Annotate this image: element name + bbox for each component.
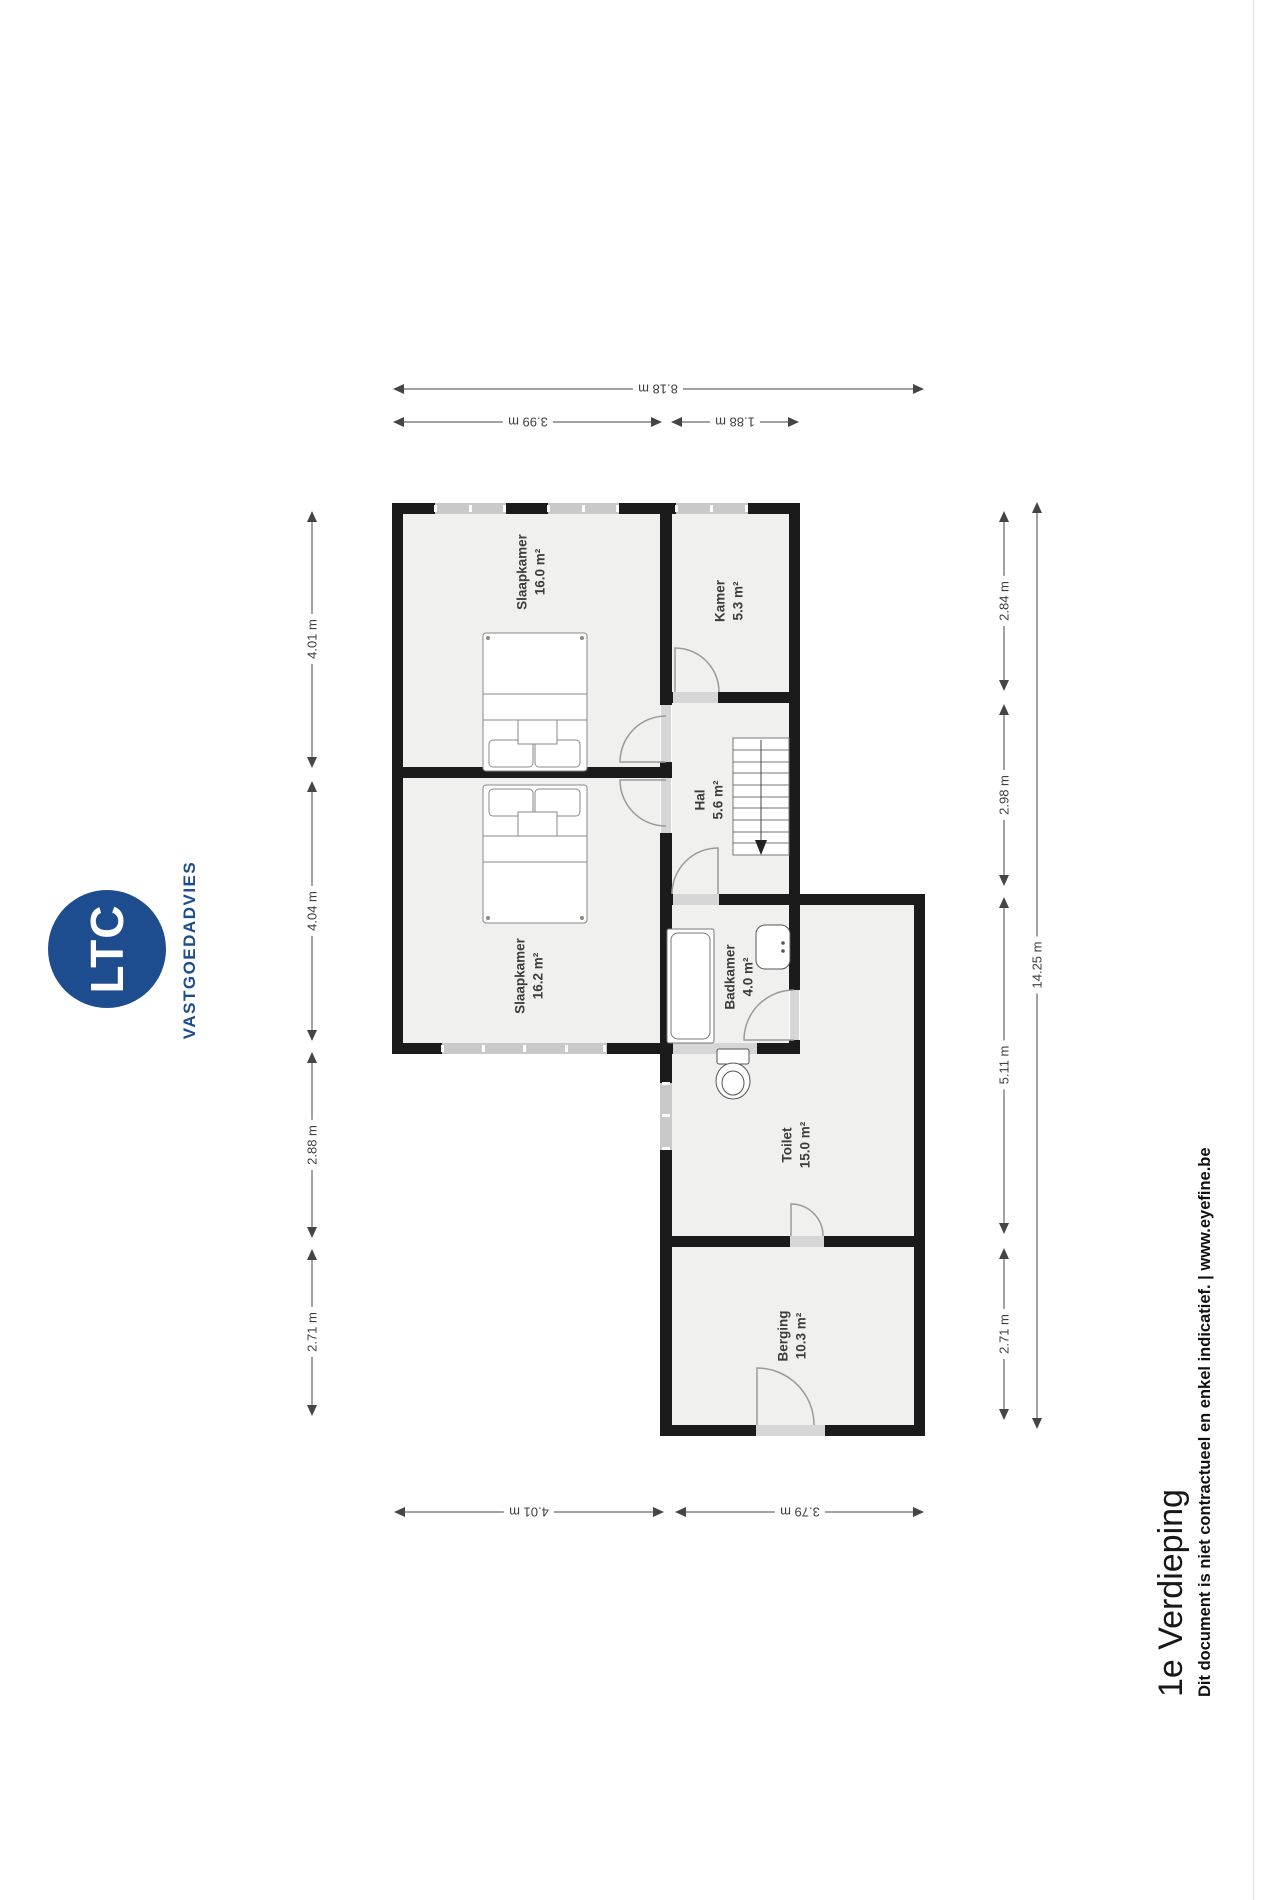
room-area: 5.6 m² xyxy=(709,780,727,819)
room-name: Toilet xyxy=(778,1122,796,1169)
washbasin xyxy=(756,925,790,969)
dim-right-1: 2.84 m xyxy=(997,576,1012,626)
dim-top-total: 8.18 m xyxy=(633,382,683,397)
page-edge-line xyxy=(1253,0,1254,1900)
room-label-slaapkamer-1: Slaapkamer 16.0 m² xyxy=(513,534,548,610)
dim-right-total: 14.25 m xyxy=(1030,937,1045,994)
room-name: Hal xyxy=(691,780,709,819)
room-area: 15.0 m² xyxy=(796,1122,814,1169)
disclaimer-text: Dit document is niet contractueel en enk… xyxy=(1196,1147,1215,1697)
room-label-toilet: Toilet 15.0 m² xyxy=(778,1122,813,1169)
room-area: 4.0 m² xyxy=(739,944,757,1009)
dim-right-2: 2.98 m xyxy=(997,770,1012,820)
toilet-fixture xyxy=(716,1049,750,1099)
room-name: Slaapkamer xyxy=(513,534,531,610)
room-label-badkamer: Badkamer 4.0 m² xyxy=(721,944,756,1009)
dim-left-3: 2.88 m xyxy=(305,1120,320,1170)
dim-top-left: 3.99 m xyxy=(503,415,553,430)
bathtub xyxy=(667,929,714,1043)
bed-slaapkamer-2 xyxy=(483,785,587,923)
dim-bottom-left: 4.01 m xyxy=(504,1505,554,1520)
room-area: 10.3 m² xyxy=(792,1310,810,1361)
bed-slaapkamer-1 xyxy=(483,633,587,771)
ltc-logo: LTC xyxy=(48,890,166,1008)
ltc-logo-subtitle: VASTGOEDADVIES xyxy=(180,861,200,1039)
room-name: Slaapkamer xyxy=(511,938,529,1014)
room-area: 16.0 m² xyxy=(531,534,549,610)
room-area: 5.3 m² xyxy=(729,580,747,622)
staircase xyxy=(733,738,789,855)
room-label-berging: Berging 10.3 m² xyxy=(774,1310,809,1361)
dim-right-4: 2.71 m xyxy=(997,1309,1012,1359)
room-area: 16.2 m² xyxy=(529,938,547,1014)
dim-top-right: 1.88 m xyxy=(710,415,760,430)
room-name: Kamer xyxy=(711,580,729,622)
dim-bottom-right: 3.79 m xyxy=(775,1505,825,1520)
room-label-hal: Hal 5.6 m² xyxy=(691,780,726,819)
room-name: Berging xyxy=(774,1310,792,1361)
floor-title: 1e Verdieping xyxy=(1152,1489,1191,1697)
floorplan-page: Slaapkamer 16.0 m² Kamer 5.3 m² Hal 5.6 … xyxy=(0,0,1264,1900)
dim-right-3: 5.11 m xyxy=(997,1041,1012,1090)
dim-left-1: 4.01 m xyxy=(305,614,320,664)
room-fills xyxy=(403,514,914,1425)
room-label-kamer: Kamer 5.3 m² xyxy=(711,580,746,622)
room-name: Badkamer xyxy=(721,944,739,1009)
room-label-slaapkamer-2: Slaapkamer 16.2 m² xyxy=(511,938,546,1014)
ltc-logo-text: LTC xyxy=(80,904,134,993)
dim-left-2: 4.04 m xyxy=(305,886,320,936)
dim-left-4: 2.71 m xyxy=(305,1307,320,1357)
